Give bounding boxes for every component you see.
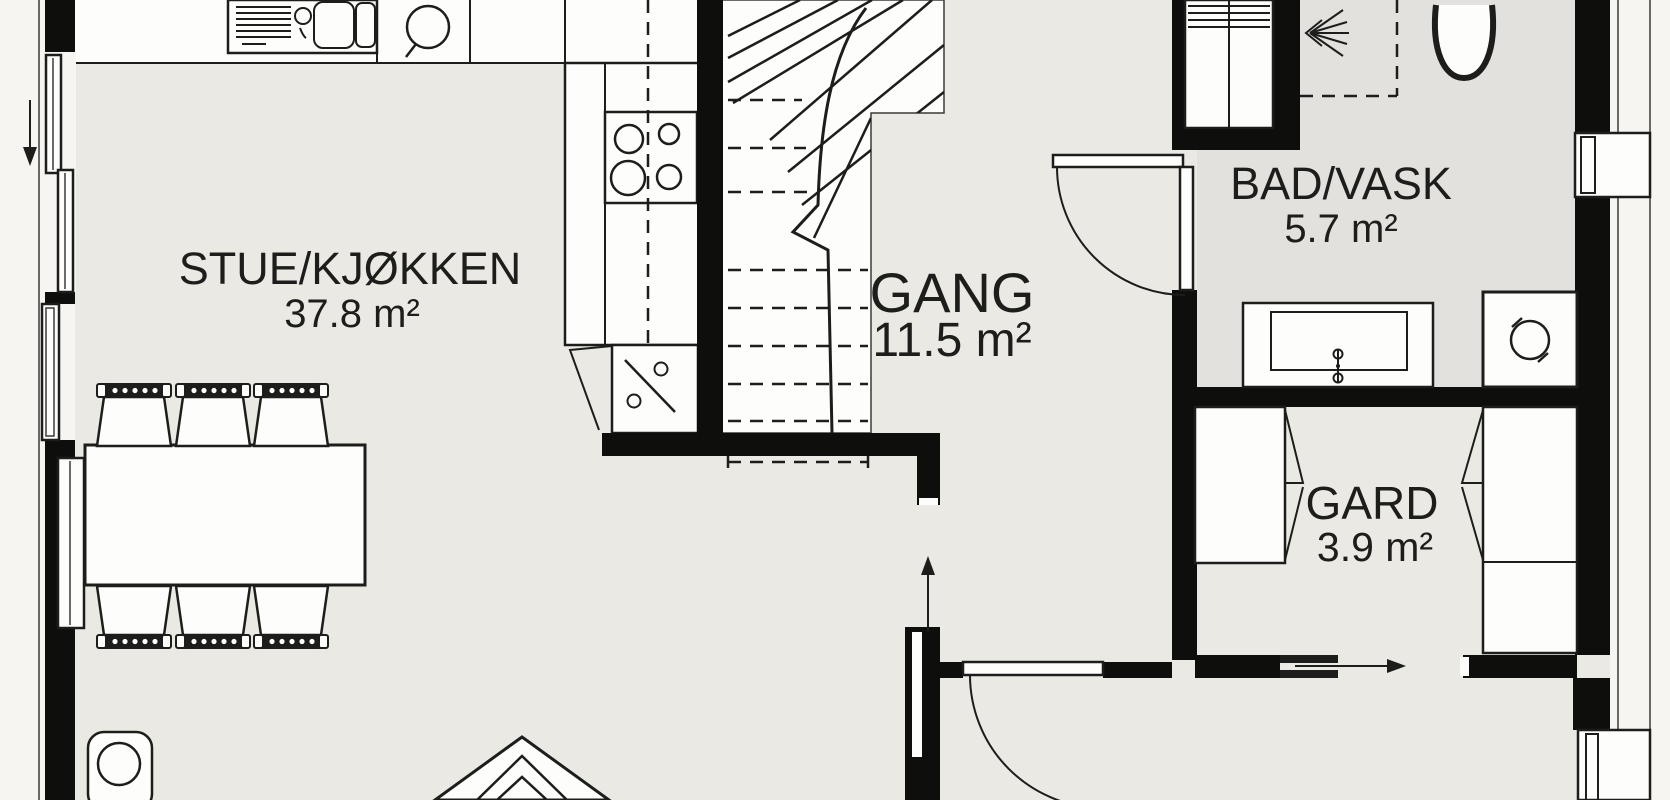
label-stue-name: STUE/KJØKKEN [179, 243, 522, 294]
kitchen-sink-icon [228, 0, 377, 53]
window-left-lower [58, 458, 84, 628]
floor-plan: STUE/KJØKKEN 37.8 m² GANG 11.5 m² BAD/VA… [0, 0, 1670, 800]
window-left-upper [42, 304, 59, 440]
floor-plan-drawing: STUE/KJØKKEN 37.8 m² GANG 11.5 m² BAD/VA… [0, 0, 1670, 800]
window-right-bottom [1578, 730, 1650, 800]
wood-stove-icon [88, 732, 152, 800]
label-stue-area: 37.8 m² [284, 292, 420, 336]
closet-icon [1185, 0, 1273, 128]
vanity-sink-icon [1243, 303, 1433, 387]
label-gard-area: 3.9 m² [1317, 524, 1433, 570]
label-gang-area: 11.5 m² [872, 314, 1031, 367]
outside-right [1610, 0, 1670, 800]
window-right-bad [1575, 133, 1650, 197]
kitchen-counter-top [75, 0, 722, 63]
washing-machine-icon [1483, 292, 1577, 387]
label-bad-name: BAD/VASK [1230, 158, 1452, 209]
cooktop-icon [605, 112, 697, 203]
label-gard-name: GARD [1306, 477, 1439, 529]
dining-table-icon [85, 445, 365, 585]
toilet-icon [1435, 5, 1493, 78]
label-bad-area: 5.7 m² [1284, 207, 1397, 251]
sliding-door-left [44, 52, 76, 292]
